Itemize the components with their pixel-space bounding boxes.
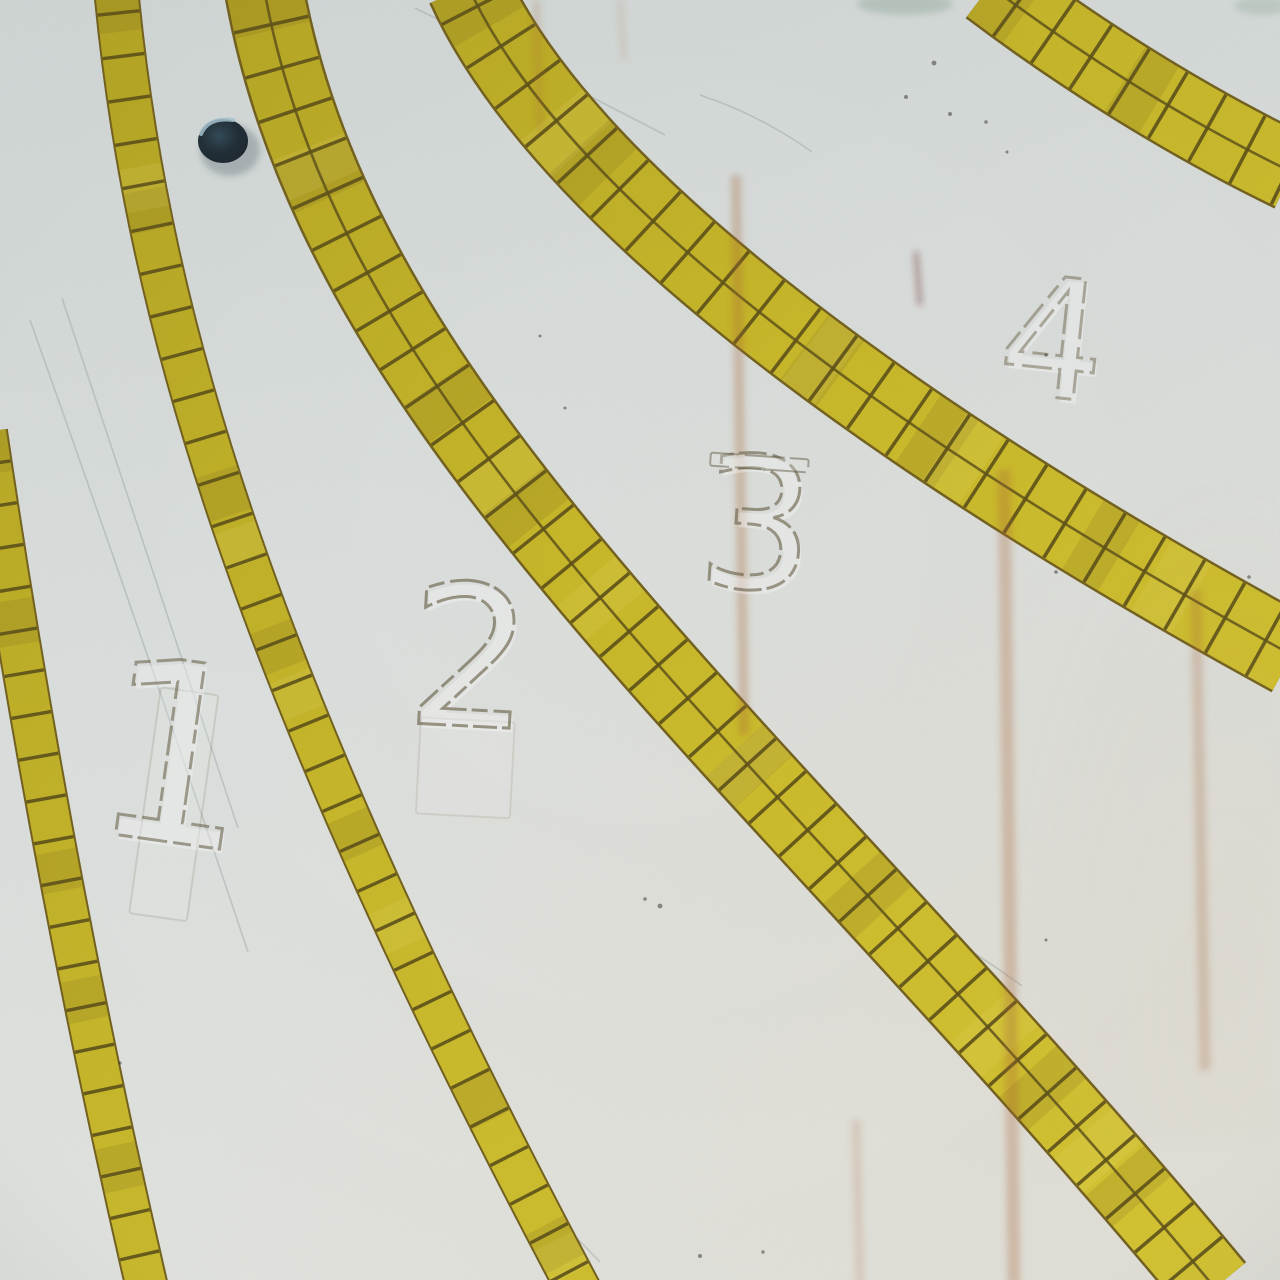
pool-lane-photo-canvas: 1 1 2 2 3 3 4 4: [0, 0, 1280, 1280]
vignette-overlay: [0, 0, 1280, 1280]
pool-lane-photo: 1 1 2 2 3 3 4 4: [0, 0, 1280, 1280]
